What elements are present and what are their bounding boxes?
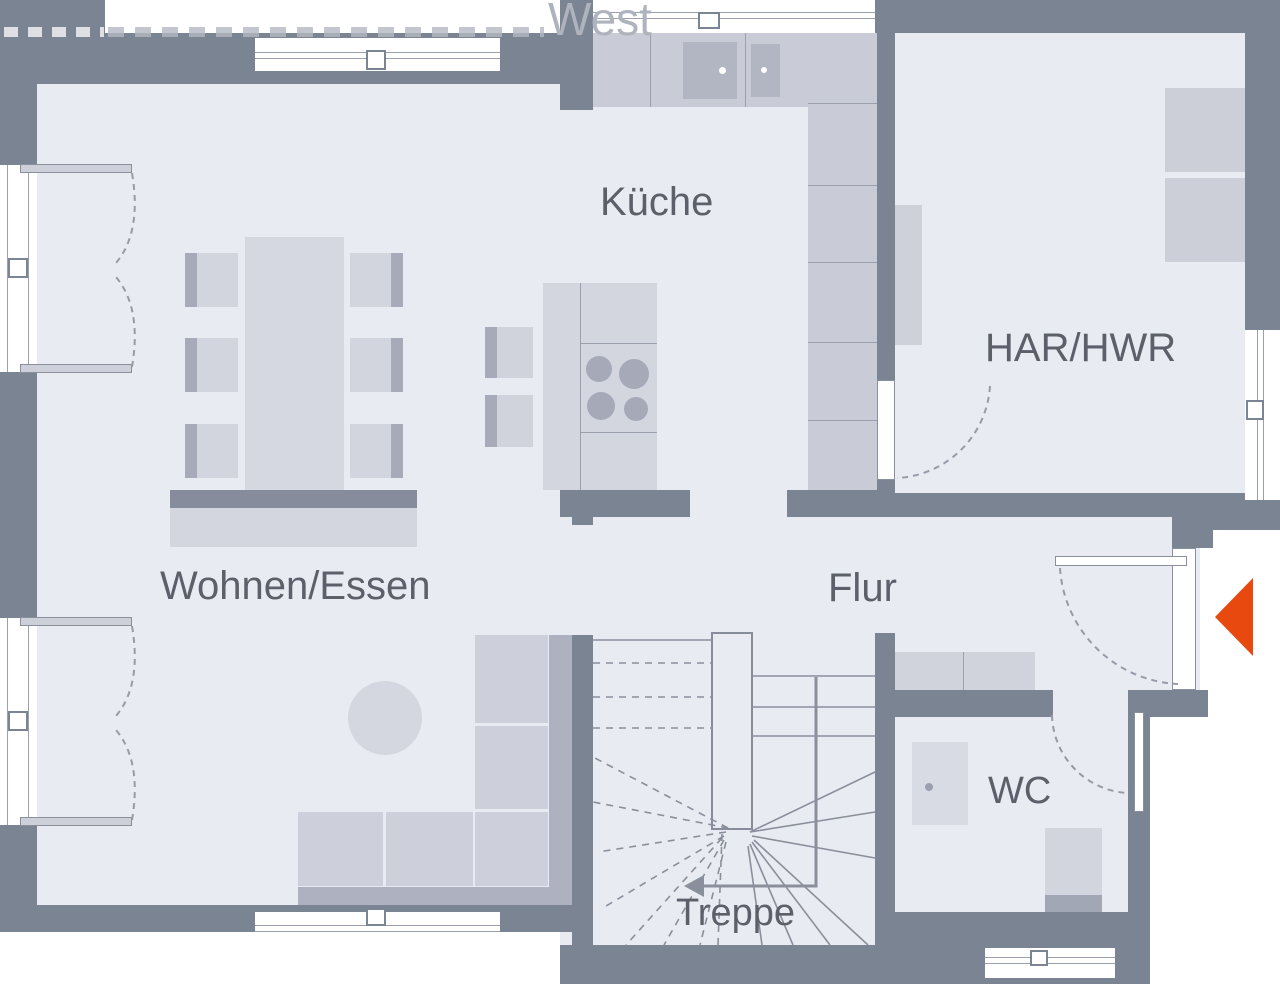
entrance-door-swing: [1060, 568, 1178, 684]
room-label-stairs: Treppe: [676, 892, 795, 935]
room-label-wc: WC: [988, 770, 1051, 813]
stair-well: [712, 633, 752, 829]
floor-plan: Küche HAR/HWR Wohnen/Essen Flur WC Trepp…: [0, 0, 1280, 984]
plan-annotations: [0, 0, 1280, 984]
watermark-text: West: [548, 0, 652, 46]
utility-door-swing: [897, 386, 990, 478]
room-label-utility: HAR/HWR: [985, 326, 1176, 371]
entrance-arrow-icon: [1215, 578, 1253, 656]
room-label-living: Wohnen/Essen: [160, 564, 431, 609]
door-swing-arcs: [116, 173, 1178, 820]
wc-door-swing: [1052, 715, 1128, 793]
room-label-hall: Flur: [828, 566, 897, 611]
room-label-kitchen: Küche: [600, 180, 713, 225]
watermark-clipped-text: [4, 27, 104, 37]
watermark-clipped-text: [108, 27, 544, 37]
